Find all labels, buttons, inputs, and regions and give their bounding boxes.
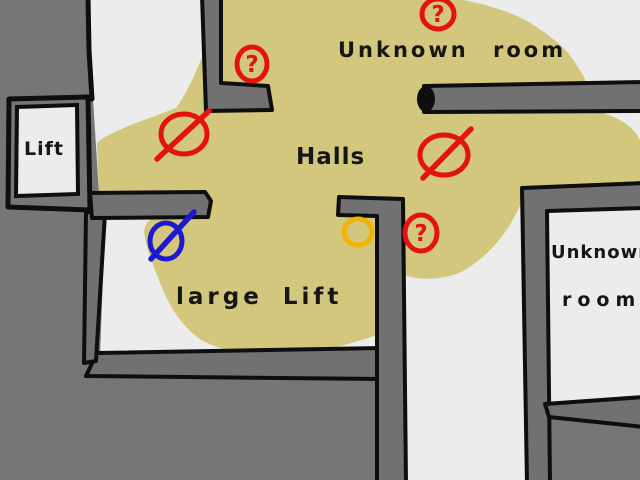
wall-large-lift-bottom [86, 348, 383, 379]
label-unknown-room-right-line1: Unknown [551, 242, 640, 263]
label-halls: Halls [296, 144, 365, 170]
svg-text:?: ? [414, 221, 427, 247]
svg-text:?: ? [431, 2, 444, 28]
label-unknown-room-top: Unknown room [338, 38, 566, 62]
hand-drawn-map: Unknown room Halls Lift large Lift Unkno… [0, 0, 640, 480]
label-large-lift: large Lift [176, 284, 342, 310]
wall-top-right [424, 82, 640, 112]
label-unknown-room-right-line2: room [562, 289, 640, 311]
wall-top-right-endcap [417, 86, 435, 112]
label-lift: Lift [24, 138, 64, 160]
svg-text:?: ? [245, 52, 258, 78]
map-canvas: Unknown room Halls Lift large Lift Unkno… [0, 0, 640, 480]
